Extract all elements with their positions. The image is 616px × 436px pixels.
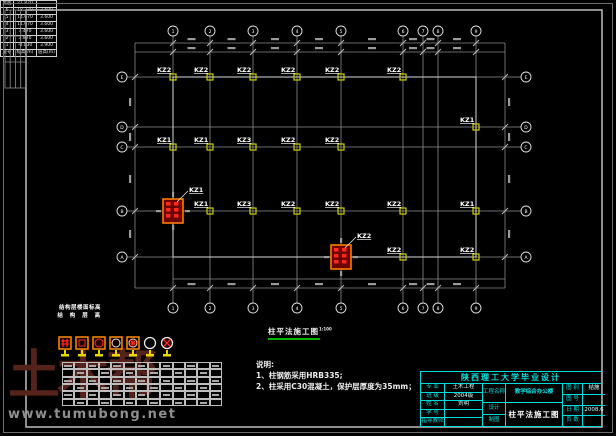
axis-bubble-label: 2	[209, 29, 212, 35]
design-label: 设计	[483, 403, 505, 415]
dimension-text	[508, 98, 510, 106]
title-block-mid-labels: 工程名称 设计 制图	[483, 384, 506, 426]
dimension-text	[172, 192, 174, 197]
schedule-cell	[210, 369, 222, 376]
schedule-cell	[99, 391, 111, 398]
dimension-text	[427, 283, 435, 285]
column-label: KZ1	[460, 116, 475, 124]
dimension-text	[156, 210, 161, 212]
schedule-cell	[111, 362, 123, 369]
column-schedule-table	[62, 362, 222, 406]
column-section-symbol-inner-square	[75, 336, 90, 360]
axis-bubble-label: B	[524, 209, 527, 215]
schedule-cell	[124, 377, 136, 384]
schedule-cell	[99, 384, 111, 391]
schedule-cell	[124, 391, 136, 398]
building-outline	[173, 77, 476, 257]
dimension-text	[353, 256, 358, 258]
schedule-cell	[136, 362, 148, 369]
schedule-cell	[111, 369, 123, 376]
schedule-cell	[185, 377, 197, 384]
dimension-text	[340, 271, 342, 276]
dimension-text	[188, 283, 196, 285]
axis-bubble-label: 2	[209, 306, 212, 312]
column-label: KZ2	[157, 66, 171, 74]
title-block: 陕西理工大学毕业设计 专 业 班 级 姓 名 学 号 指导教师 土木工程 200…	[420, 371, 602, 427]
red-column-flag: KZ2	[357, 232, 371, 240]
schedule-cell	[62, 369, 74, 376]
schedule-cell	[173, 399, 185, 406]
schedule-cell	[124, 369, 136, 376]
schedule-cell	[74, 362, 86, 369]
dimension-text	[228, 38, 236, 40]
dimension-text	[129, 175, 131, 183]
schedule-cell	[62, 377, 74, 384]
field-label: 专 业	[421, 384, 444, 393]
dimension-text	[368, 283, 376, 285]
schedule-cell	[210, 377, 222, 384]
schedule-cell	[160, 391, 172, 398]
caption-scale: 1:100	[319, 327, 332, 332]
schedule-cell	[148, 362, 160, 369]
schedule-cell	[111, 384, 123, 391]
storey-table-subtitle: 结 构 层 高	[42, 311, 118, 319]
schedule-cell	[173, 391, 185, 398]
column-section-symbol-hatched-square	[58, 336, 73, 360]
column-section-symbol-hatched-circle-in-square	[126, 336, 141, 360]
title-block-header: 陕西理工大学毕业设计	[421, 372, 601, 384]
field-value: 2004级	[445, 393, 482, 402]
field-label: 图 号	[563, 395, 582, 406]
rebar-mark	[334, 248, 339, 252]
dimension-text	[409, 283, 417, 285]
axis-bubble-label: 7	[422, 29, 425, 35]
schedule-cell	[99, 399, 111, 406]
rebar-mark	[342, 248, 347, 252]
column-label: KZ2	[281, 200, 295, 208]
title-block-names: 教学综合办公楼 柱平法施工图	[506, 384, 563, 426]
schedule-cell	[160, 399, 172, 406]
rebar-mark	[166, 208, 171, 212]
dimension-text	[453, 47, 461, 49]
column-section-legend	[58, 336, 175, 360]
title-block-right-labels: 图 别 图 号 日 期 页 数	[563, 384, 583, 426]
axis-bubble-label: 4	[296, 306, 299, 312]
schedule-cell	[148, 399, 160, 406]
dimension-text	[427, 38, 435, 40]
rebar-mark	[334, 254, 339, 258]
schedule-cell	[173, 369, 185, 376]
schedule-cell	[185, 399, 197, 406]
column-section-symbol-circle-in-square	[109, 336, 124, 360]
schedule-cell	[160, 362, 172, 369]
schedule-cell	[173, 377, 185, 384]
field-label: 学 号	[421, 410, 444, 419]
schedule-cell	[87, 384, 99, 391]
dimension-text	[340, 238, 342, 243]
column-label: KZ1	[460, 200, 475, 208]
schedule-cell	[148, 377, 160, 384]
axis-bubble-label: E	[121, 75, 124, 81]
signature-grid	[5, 10, 26, 88]
schedule-cell	[136, 399, 148, 406]
column-label: KZ2	[325, 136, 339, 144]
draft-label: 制图	[483, 415, 505, 426]
field-value	[445, 418, 482, 426]
dimension-text	[129, 230, 131, 238]
schedule-cell	[87, 377, 99, 384]
schedule-cell	[62, 399, 74, 406]
schedule-cell	[111, 391, 123, 398]
cad-canvas: 123456789123456789EDCBAEDCBAKZ2KZ2KZ2KZ2…	[0, 0, 616, 436]
column-label: KZ2	[325, 66, 339, 74]
column-label: KZ2	[387, 66, 401, 74]
dimension-text	[453, 38, 461, 40]
notes-block: 说明: 1、柱钢筋采用HRB335; 2、柱采用C30混凝土，保护层厚度为35m…	[256, 359, 436, 392]
field-value	[583, 416, 605, 426]
axis-bubble-label: 5	[340, 306, 343, 312]
schedule-cell	[185, 384, 197, 391]
axis-bubble-label: C	[524, 145, 527, 151]
schedule-cell	[87, 362, 99, 369]
axis-bubble-label: 6	[402, 306, 405, 312]
axis-bubble-label: 7	[422, 306, 425, 312]
schedule-cell	[124, 384, 136, 391]
drawing-name: 柱平法施工图	[506, 403, 562, 426]
column-label: KZ2	[325, 200, 339, 208]
dimension-text	[368, 47, 376, 49]
axis-bubble-label: 4	[296, 29, 299, 35]
schedule-cell	[111, 399, 123, 406]
dimension-text	[271, 283, 279, 285]
rebar-mark	[166, 214, 171, 218]
axis-bubble-label: 9	[475, 29, 478, 35]
schedule-cell	[197, 384, 209, 391]
rebar-mark	[174, 202, 179, 206]
axis-bubble-label: E	[525, 75, 528, 81]
rebar-mark	[334, 260, 339, 264]
column-label: KZ2	[194, 66, 208, 74]
dimension-text	[271, 47, 279, 49]
column-label: KZ2	[281, 136, 295, 144]
axis-bubble-label: 3	[252, 306, 255, 312]
dimension-text	[409, 38, 417, 40]
dimension-text	[453, 283, 461, 285]
field-label: 页 数	[563, 416, 582, 426]
axis-bubble-label: 5	[340, 29, 343, 35]
axis-bubble-label: 8	[437, 29, 440, 35]
column-label: KZ2	[387, 200, 401, 208]
storey-table-title: 结构层楼面标高	[42, 303, 118, 311]
field-value: 2008.6	[583, 406, 605, 417]
axis-bubble-label: D	[120, 125, 124, 131]
column-label: KZ1	[194, 136, 209, 144]
schedule-cell	[160, 384, 172, 391]
axis-bubble-label: B	[120, 209, 123, 215]
schedule-cell	[210, 391, 222, 398]
column-section-symbol-filled-circle	[92, 336, 107, 360]
schedule-cell	[87, 391, 99, 398]
red-column-flag: KZ1	[189, 186, 204, 194]
column-label: KZ2	[460, 246, 474, 254]
field-value: 刘明	[445, 401, 482, 410]
dimension-text	[188, 47, 196, 49]
axis-bubble-label: D	[524, 125, 528, 131]
schedule-cell	[74, 391, 86, 398]
rebar-mark	[174, 208, 179, 212]
schedule-cell	[185, 362, 197, 369]
schedule-cell	[74, 377, 86, 384]
dimension-text	[315, 38, 323, 40]
schedule-cell	[111, 377, 123, 384]
dimension-text	[228, 47, 236, 49]
axis-bubble-label: 1	[172, 29, 175, 35]
schedule-cell	[62, 362, 74, 369]
field-value: 土木工程	[445, 384, 482, 393]
project-name: 教学综合办公楼	[506, 384, 562, 403]
schedule-cell	[173, 384, 185, 391]
schedule-cell	[197, 369, 209, 376]
column-label: KZ1	[157, 136, 172, 144]
schedule-cell	[99, 369, 111, 376]
drawing-caption: 柱平法施工图1:100	[268, 326, 332, 340]
caption-text: 柱平法施工图	[268, 327, 319, 336]
schedule-cell	[197, 391, 209, 398]
axis-bubble-label: 9	[475, 306, 478, 312]
note-item: 2、柱采用C30混凝土，保护层厚度为35mm；	[256, 381, 436, 392]
column-label: KZ3	[237, 136, 251, 144]
column-label: KZ2	[281, 66, 295, 74]
schedule-cell	[87, 369, 99, 376]
dimension-text	[427, 47, 435, 49]
dimension-text	[508, 175, 510, 183]
dimension-text	[228, 283, 236, 285]
column-label: KZ1	[194, 200, 209, 208]
title-block-right-values: 结施 2008.6	[583, 384, 605, 426]
dimension-text	[315, 47, 323, 49]
axis-bubble-label: 1	[172, 306, 175, 312]
dimension-text	[185, 210, 190, 212]
notes-title: 说明:	[256, 359, 436, 370]
schedule-cell	[210, 384, 222, 391]
title-block-values: 土木工程 2004级 刘明	[445, 384, 483, 426]
dimension-text	[129, 98, 131, 106]
dimension-text	[508, 230, 510, 238]
dimension-text	[409, 47, 417, 49]
schedule-cell	[210, 362, 222, 369]
title-block-labels: 专 业 班 级 姓 名 学 号 指导教师	[421, 384, 445, 426]
dimension-text	[368, 38, 376, 40]
axis-bubble-label: 8	[437, 306, 440, 312]
dimension-text	[324, 256, 329, 258]
rebar-mark	[166, 202, 171, 206]
dimension-text	[315, 283, 323, 285]
axis-bubble-label: C	[120, 145, 123, 151]
schedule-cell	[136, 384, 148, 391]
schedule-cell	[148, 384, 160, 391]
schedule-cell	[148, 369, 160, 376]
schedule-cell	[197, 362, 209, 369]
rebar-mark	[342, 254, 347, 258]
schedule-cell	[124, 362, 136, 369]
dimension-text	[188, 38, 196, 40]
rebar-mark	[342, 260, 347, 264]
axis-bubble-label: 6	[402, 29, 405, 35]
schedule-cell	[148, 391, 160, 398]
schedule-cell	[87, 399, 99, 406]
schedule-cell	[74, 399, 86, 406]
axis-bubble-label: 3	[252, 29, 255, 35]
schedule-cell	[185, 391, 197, 398]
schedule-cell	[160, 369, 172, 376]
schedule-cell	[160, 377, 172, 384]
schedule-cell	[136, 391, 148, 398]
watermark-url: www.tumubong.net	[8, 407, 176, 422]
field-value	[583, 395, 605, 406]
column-label: KZ2	[237, 66, 251, 74]
field-label: 指导教师	[421, 418, 444, 426]
column-label: KZ2	[387, 246, 401, 254]
field-label: 姓 名	[421, 401, 444, 410]
column-label: KZ3	[237, 200, 251, 208]
schedule-cell	[124, 399, 136, 406]
field-label: 日 期	[563, 406, 582, 417]
field-label: 班 级	[421, 393, 444, 402]
schedule-cell	[136, 377, 148, 384]
schedule-cell	[62, 384, 74, 391]
schedule-cell	[74, 369, 86, 376]
dimension-text	[129, 133, 131, 141]
schedule-cell	[173, 362, 185, 369]
field-value	[445, 410, 482, 419]
column-section-symbol-hatched-circle	[160, 336, 175, 360]
field-value: 结施	[583, 384, 605, 395]
schedule-cell	[74, 384, 86, 391]
schedule-cell	[197, 377, 209, 384]
schedule-cell	[136, 369, 148, 376]
note-item: 1、柱钢筋采用HRB335;	[256, 370, 436, 381]
schedule-cell	[99, 362, 111, 369]
schedule-cell	[197, 399, 209, 406]
schedule-cell	[210, 399, 222, 406]
schedule-cell	[99, 377, 111, 384]
dimension-text	[508, 133, 510, 141]
rebar-mark	[174, 214, 179, 218]
dimension-text	[172, 225, 174, 230]
dimension-text	[271, 38, 279, 40]
caption-underline	[268, 338, 320, 340]
field-label: 图 别	[563, 384, 582, 395]
column-section-symbol-circle	[143, 336, 158, 360]
schedule-cell	[185, 369, 197, 376]
project-name-label: 工程名称	[483, 384, 505, 403]
schedule-cell	[62, 391, 74, 398]
